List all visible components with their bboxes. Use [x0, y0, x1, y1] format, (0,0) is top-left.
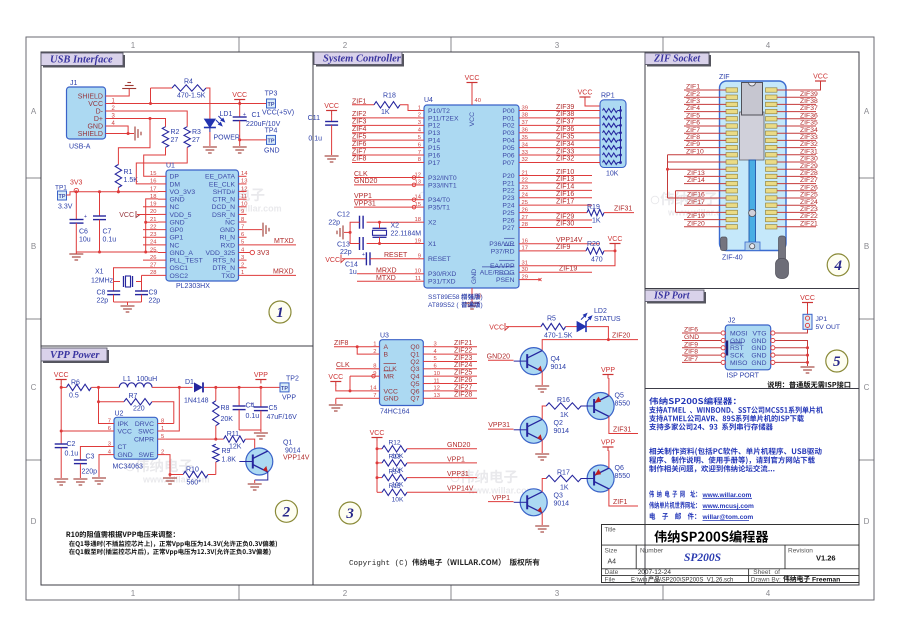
- svg-text:RESET: RESET: [384, 252, 408, 259]
- svg-text:A: A: [384, 344, 389, 351]
- svg-text:P00: P00: [502, 108, 514, 115]
- svg-text:ZIF17: ZIF17: [556, 198, 574, 205]
- svg-text:ZIF22: ZIF22: [454, 347, 472, 354]
- svg-text:R2: R2: [171, 129, 180, 136]
- svg-text:3: 3: [555, 589, 560, 598]
- svg-text:ZIF19: ZIF19: [559, 265, 577, 272]
- svg-text:5V OUT: 5V OUT: [816, 324, 841, 331]
- svg-text:C13: C13: [337, 242, 350, 249]
- svg-text:16: 16: [522, 239, 528, 245]
- svg-text:MTXD: MTXD: [274, 238, 294, 245]
- svg-text:ZIF38: ZIF38: [556, 111, 574, 118]
- svg-text:P20: P20: [502, 173, 514, 180]
- svg-text:VCC: VCC: [469, 112, 476, 126]
- svg-text:MOSI: MOSI: [730, 330, 747, 337]
- svg-text:P25: P25: [502, 210, 514, 217]
- svg-text:E:\win: E:\win: [631, 577, 647, 583]
- svg-text:ZIF4: ZIF4: [686, 105, 700, 112]
- svg-text:GND: GND: [751, 353, 766, 360]
- svg-text:GND: GND: [170, 197, 185, 204]
- svg-text:Q1: Q1: [283, 440, 292, 447]
- svg-text:B: B: [864, 242, 869, 251]
- svg-text:R6: R6: [71, 380, 80, 387]
- svg-text:31: 31: [522, 261, 528, 267]
- svg-text:ZIF9: ZIF9: [684, 341, 698, 348]
- svg-text:8550: 8550: [615, 401, 631, 408]
- svg-text:MR: MR: [384, 374, 395, 381]
- svg-text:GND: GND: [751, 360, 766, 367]
- svg-text:P24: P24: [502, 203, 514, 210]
- svg-text:SWC: SWC: [138, 429, 154, 436]
- svg-text:5: 5: [241, 240, 244, 246]
- svg-text:VCC: VCC: [88, 101, 103, 108]
- svg-text:POWER: POWER: [214, 135, 240, 142]
- svg-text:OSC1: OSC1: [170, 265, 189, 272]
- svg-text:3V3: 3V3: [257, 250, 270, 257]
- svg-text:ZIF29: ZIF29: [556, 213, 574, 220]
- svg-text:ZIF20: ZIF20: [612, 332, 630, 339]
- svg-text:RP1: RP1: [601, 93, 615, 100]
- svg-text:ZIF16: ZIF16: [687, 192, 705, 199]
- svg-text:17: 17: [150, 186, 156, 192]
- svg-text:3: 3: [345, 506, 354, 522]
- svg-text:ZIF29: ZIF29: [800, 163, 818, 170]
- svg-text:P21: P21: [502, 180, 514, 187]
- svg-text:GP1: GP1: [170, 235, 184, 242]
- svg-text:VPP1: VPP1: [354, 193, 372, 200]
- svg-text:P33/INT1: P33/INT1: [428, 182, 457, 189]
- svg-text:C6: C6: [79, 229, 88, 236]
- svg-text:6: 6: [241, 232, 244, 238]
- svg-text:Q3: Q3: [410, 366, 419, 373]
- svg-text:VCC: VCC: [384, 388, 398, 395]
- svg-text:R20: R20: [587, 241, 600, 248]
- svg-text:1K: 1K: [560, 412, 569, 419]
- svg-text:USB-A: USB-A: [69, 144, 91, 151]
- svg-text:ZIF10: ZIF10: [686, 148, 704, 155]
- svg-text:C7: C7: [103, 229, 112, 236]
- svg-text:R8: R8: [221, 405, 230, 412]
- svg-text:13: 13: [241, 179, 247, 185]
- svg-text:Q3: Q3: [554, 493, 563, 500]
- svg-text:ZIF9: ZIF9: [686, 141, 700, 148]
- svg-text:GND20: GND20: [487, 353, 510, 360]
- svg-text:9014: 9014: [551, 364, 567, 371]
- svg-text:P10/T2: P10/T2: [428, 108, 450, 115]
- svg-text:74HC164: 74HC164: [380, 409, 410, 416]
- svg-text:GND20: GND20: [354, 178, 377, 185]
- svg-text:7: 7: [418, 150, 421, 156]
- svg-text:willar@tom.com: willar@tom.com: [702, 514, 754, 521]
- svg-text:Freeman: Freeman: [812, 576, 840, 583]
- svg-text:VCC: VCC: [232, 92, 247, 99]
- svg-text:Number: Number: [640, 548, 664, 555]
- svg-text:40: 40: [475, 98, 481, 104]
- svg-text:R7: R7: [129, 393, 138, 400]
- svg-text:TP1: TP1: [55, 185, 67, 192]
- svg-text:A4: A4: [608, 559, 617, 566]
- svg-text:470-1.5K: 470-1.5K: [177, 93, 206, 100]
- svg-text:P22: P22: [502, 188, 514, 195]
- svg-text:38: 38: [522, 113, 528, 119]
- svg-text:1K: 1K: [381, 109, 390, 116]
- svg-text:ZIF7: ZIF7: [686, 127, 700, 134]
- svg-text:RI_N: RI_N: [220, 235, 236, 242]
- svg-text:25: 25: [150, 247, 156, 253]
- svg-text:ZIF2: ZIF2: [352, 111, 366, 118]
- svg-text:ZIF31: ZIF31: [613, 426, 631, 433]
- svg-text:Q2: Q2: [554, 420, 563, 427]
- svg-text:P17: P17: [428, 160, 440, 167]
- svg-text:12: 12: [241, 186, 247, 192]
- svg-text:R5: R5: [547, 316, 556, 323]
- svg-text:R4: R4: [184, 79, 193, 86]
- svg-text:V1.26: V1.26: [816, 554, 836, 563]
- svg-text:4: 4: [833, 258, 842, 274]
- svg-text:26: 26: [522, 207, 528, 213]
- svg-text:ZIF24: ZIF24: [800, 199, 818, 206]
- svg-text:9: 9: [241, 209, 244, 215]
- svg-text:ZIF3: ZIF3: [686, 98, 700, 105]
- svg-text:Q6: Q6: [410, 388, 419, 395]
- svg-text:8: 8: [241, 217, 244, 223]
- svg-text:ZIF8: ZIF8: [352, 156, 366, 163]
- svg-text:PL2303HX: PL2303HX: [176, 283, 210, 290]
- svg-text:ZIF25: ZIF25: [454, 370, 472, 377]
- svg-text:ZIF26: ZIF26: [454, 377, 472, 384]
- svg-text:D: D: [864, 517, 870, 526]
- svg-text:ZIF8: ZIF8: [334, 340, 348, 347]
- svg-text:0.5: 0.5: [69, 393, 79, 400]
- svg-text:1: 1: [131, 589, 136, 598]
- svg-text:P30/RXD: P30/RXD: [428, 271, 456, 278]
- svg-text:TP: TP: [268, 138, 275, 144]
- svg-text:ZIF6: ZIF6: [686, 120, 700, 127]
- svg-text:ZIF17: ZIF17: [687, 199, 705, 206]
- svg-text:ZIF16: ZIF16: [556, 191, 574, 198]
- svg-text:VPP Power: VPP Power: [50, 350, 100, 361]
- svg-text:LD2: LD2: [594, 308, 607, 315]
- svg-text:P23: P23: [502, 195, 514, 202]
- svg-text:VCC: VCC: [325, 257, 340, 264]
- svg-text:ZIF: ZIF: [719, 74, 730, 81]
- svg-text:X1: X1: [95, 269, 104, 276]
- svg-text:2: 2: [343, 41, 348, 50]
- svg-text:27: 27: [192, 137, 200, 144]
- svg-text:ZIF30: ZIF30: [800, 156, 818, 163]
- svg-text:MISO: MISO: [730, 360, 747, 367]
- svg-text:TP: TP: [281, 386, 288, 392]
- svg-text:0.1u: 0.1u: [246, 413, 260, 420]
- svg-text:GP0: GP0: [170, 227, 184, 234]
- svg-text:VCC: VCC: [813, 74, 828, 81]
- svg-text:Q2: Q2: [410, 359, 419, 366]
- svg-text:ZIF38: ZIF38: [800, 98, 818, 105]
- svg-text:3: 3: [555, 41, 560, 50]
- svg-text:ZIF32: ZIF32: [800, 141, 818, 148]
- svg-text:ZIF31: ZIF31: [614, 205, 632, 212]
- svg-text:Sheet: Sheet: [753, 569, 770, 576]
- svg-text:C14: C14: [345, 262, 358, 269]
- svg-text:P06: P06: [502, 152, 514, 159]
- svg-text:ZIF37: ZIF37: [556, 119, 574, 126]
- svg-text:1K: 1K: [560, 485, 569, 492]
- svg-text:VCC: VCC: [800, 295, 815, 302]
- svg-text:SWE: SWE: [139, 452, 155, 459]
- svg-text:P13: P13: [428, 130, 440, 137]
- svg-text:P34/T0: P34/T0: [428, 197, 450, 204]
- svg-text:ZIF4: ZIF4: [352, 126, 366, 133]
- svg-text:VCC: VCC: [465, 75, 480, 82]
- svg-text:220p: 220p: [82, 469, 98, 476]
- svg-text:TP2: TP2: [286, 376, 299, 383]
- svg-text:EE_CLK: EE_CLK: [209, 181, 236, 188]
- svg-text:P12: P12: [428, 123, 440, 130]
- svg-text:GND: GND: [264, 148, 280, 155]
- svg-text:VCC: VCC: [489, 325, 504, 332]
- svg-text:R3: R3: [192, 129, 201, 136]
- svg-text:RESET: RESET: [428, 256, 451, 263]
- svg-text:D+: D+: [94, 116, 103, 123]
- svg-text:8: 8: [418, 157, 421, 163]
- svg-text:ZIF7: ZIF7: [352, 148, 366, 155]
- svg-text:B: B: [384, 351, 389, 358]
- svg-text:RXD: RXD: [221, 242, 235, 249]
- svg-text:ZIF39: ZIF39: [556, 104, 574, 111]
- svg-text:System Controller: System Controller: [323, 54, 402, 65]
- svg-text:Q5: Q5: [615, 393, 624, 400]
- svg-text:4: 4: [766, 41, 771, 50]
- svg-text:ZIF21: ZIF21: [454, 340, 472, 347]
- svg-text:36: 36: [522, 128, 528, 134]
- svg-text:VCC: VCC: [119, 212, 134, 219]
- svg-text:VPP14V: VPP14V: [447, 486, 474, 493]
- svg-text:0.1u: 0.1u: [65, 451, 79, 458]
- svg-text:35: 35: [522, 135, 528, 141]
- svg-text:VCC(+5V): VCC(+5V): [262, 110, 294, 117]
- svg-text:Drawn By:: Drawn By:: [751, 576, 781, 583]
- svg-text:CLK: CLK: [336, 362, 350, 369]
- svg-text:+: +: [362, 252, 365, 258]
- svg-text:P31/TXD: P31/TXD: [428, 279, 456, 286]
- svg-text:L1: L1: [123, 376, 131, 383]
- svg-text:): ): [481, 294, 483, 301]
- svg-text:): ): [481, 302, 483, 309]
- svg-text:SP200S: SP200S: [684, 552, 721, 564]
- svg-text:D1: D1: [185, 379, 194, 386]
- svg-text:VDD_325: VDD_325: [206, 250, 236, 257]
- svg-text:ZIF10: ZIF10: [556, 169, 574, 176]
- svg-text:TXD: TXD: [221, 273, 235, 280]
- svg-text:P03: P03: [502, 130, 514, 137]
- svg-text:8550: 8550: [615, 473, 631, 480]
- svg-text:ZIF24: ZIF24: [454, 362, 472, 369]
- svg-text:P15: P15: [428, 145, 440, 152]
- svg-text:5: 5: [833, 354, 841, 370]
- svg-text:P02: P02: [502, 123, 514, 130]
- svg-text:ZIF35: ZIF35: [800, 120, 818, 127]
- svg-text:D: D: [31, 517, 37, 526]
- svg-text:ZIF23: ZIF23: [800, 206, 818, 213]
- svg-text:20K: 20K: [221, 416, 234, 423]
- svg-text:1: 1: [241, 270, 244, 276]
- svg-text:GND_A: GND_A: [170, 250, 194, 257]
- svg-text:RTS_N: RTS_N: [213, 258, 235, 265]
- svg-text:STATUS: STATUS: [594, 316, 621, 323]
- svg-text:P04: P04: [502, 138, 514, 145]
- svg-text:470-1.5K: 470-1.5K: [544, 333, 573, 340]
- svg-text:ZIF36: ZIF36: [556, 126, 574, 133]
- svg-text:U2: U2: [115, 411, 124, 418]
- svg-text:ZIF32: ZIF32: [556, 156, 574, 163]
- svg-text:VCC: VCC: [54, 372, 69, 379]
- svg-text:9014: 9014: [554, 501, 570, 508]
- svg-text:ZIF7: ZIF7: [684, 356, 698, 363]
- svg-text:R17: R17: [557, 470, 570, 477]
- svg-text:47uF/16V: 47uF/16V: [267, 414, 298, 421]
- svg-text:CTR_N: CTR_N: [212, 197, 235, 204]
- svg-text:GND: GND: [471, 269, 478, 284]
- svg-text:SHIELD: SHIELD: [78, 94, 103, 101]
- svg-text:C8: C8: [97, 290, 106, 297]
- svg-text:ZIF1: ZIF1: [613, 499, 627, 506]
- svg-text:3: 3: [418, 120, 421, 126]
- svg-text:27: 27: [171, 137, 179, 144]
- svg-text:P14: P14: [428, 138, 440, 145]
- svg-text:ZIF33: ZIF33: [556, 148, 574, 155]
- svg-text:+: +: [243, 112, 246, 118]
- svg-text:D-: D-: [96, 109, 104, 116]
- svg-text:GND20: GND20: [447, 442, 470, 449]
- svg-text:R10: R10: [186, 467, 199, 474]
- svg-text:Date: Date: [605, 569, 619, 576]
- svg-text:ZIF5: ZIF5: [686, 112, 700, 119]
- svg-text:32: 32: [522, 157, 528, 163]
- svg-text:21: 21: [522, 170, 528, 176]
- svg-text:ZIF14: ZIF14: [687, 177, 705, 184]
- svg-text:Q6: Q6: [615, 465, 624, 472]
- svg-text:GND: GND: [87, 124, 103, 131]
- svg-text:2: 2: [241, 263, 244, 269]
- svg-text:VPP: VPP: [601, 440, 615, 447]
- svg-text:+: +: [84, 214, 87, 220]
- svg-text:Q0: Q0: [410, 344, 419, 351]
- svg-text:VPP31: VPP31: [488, 422, 510, 429]
- svg-text:P36/WR: P36/WR: [489, 241, 514, 248]
- svg-text:ZIF13: ZIF13: [687, 170, 705, 177]
- svg-text:www.willar.com: www.willar.com: [702, 492, 752, 499]
- svg-text:ZIF23: ZIF23: [454, 355, 472, 362]
- svg-text:23: 23: [522, 185, 528, 191]
- svg-text:10K: 10K: [606, 171, 619, 178]
- svg-text:28: 28: [522, 222, 528, 228]
- svg-text:22p: 22p: [149, 298, 161, 305]
- svg-text:R14: R14: [388, 468, 400, 475]
- svg-text:P35/T1: P35/T1: [428, 205, 450, 212]
- svg-text:PSEN: PSEN: [496, 277, 515, 284]
- svg-text:AT89S52 (: AT89S52 (: [428, 302, 459, 309]
- svg-text:SST89E58 (: SST89E58 (: [428, 294, 464, 301]
- svg-text:R13: R13: [388, 454, 400, 461]
- svg-text:R12: R12: [388, 440, 400, 447]
- svg-text:ALE/PROG: ALE/PROG: [480, 270, 515, 277]
- svg-text:TP: TP: [59, 194, 66, 200]
- svg-text:GND: GND: [751, 345, 766, 352]
- svg-text:1: 1: [131, 41, 136, 50]
- svg-text:3: 3: [241, 255, 244, 261]
- svg-text:ZIF30: ZIF30: [556, 221, 574, 228]
- svg-text:CLK: CLK: [384, 366, 398, 373]
- svg-text:P37/RD: P37/RD: [491, 248, 515, 255]
- svg-text:Size: Size: [605, 548, 618, 555]
- svg-text:P16: P16: [428, 152, 440, 159]
- svg-text:ZIF36: ZIF36: [800, 112, 818, 119]
- svg-text:P26: P26: [502, 217, 514, 224]
- svg-text:16: 16: [150, 179, 156, 185]
- svg-text:X1: X1: [428, 241, 437, 248]
- svg-text:VCC: VCC: [370, 430, 385, 437]
- svg-text:2007-12-24: 2007-12-24: [638, 569, 672, 576]
- svg-text:Q7: Q7: [410, 396, 419, 403]
- svg-text:SHTD#: SHTD#: [213, 189, 236, 196]
- svg-text:R11: R11: [227, 431, 239, 438]
- svg-text:R18: R18: [383, 93, 396, 100]
- svg-text:of: of: [775, 569, 781, 576]
- svg-text:ZIF Socket: ZIF Socket: [653, 54, 701, 65]
- svg-text:ZIF8: ZIF8: [686, 134, 700, 141]
- svg-text:ZIF27: ZIF27: [454, 384, 472, 391]
- svg-text:25: 25: [522, 200, 528, 206]
- svg-text:VTG: VTG: [753, 330, 767, 337]
- svg-text:DCD_N: DCD_N: [212, 204, 236, 211]
- svg-text:33: 33: [522, 150, 528, 156]
- svg-text:www.mcusj.com: www.mcusj.com: [702, 503, 755, 510]
- svg-text:ZIF34: ZIF34: [800, 127, 818, 134]
- svg-text:\SP200\SP200S_V1.26.sch: \SP200\SP200S_V1.26.sch: [660, 577, 733, 583]
- svg-text:ISP PORT: ISP PORT: [727, 373, 760, 380]
- svg-text:560*: 560*: [187, 480, 202, 487]
- svg-text:B: B: [31, 242, 36, 251]
- svg-text:GND: GND: [384, 396, 399, 403]
- svg-text:+: +: [250, 402, 253, 408]
- svg-text:DRVC: DRVC: [135, 421, 154, 428]
- svg-text:ZIF33: ZIF33: [800, 134, 818, 141]
- svg-text:VCC: VCC: [578, 90, 593, 97]
- svg-text:1.8K: 1.8K: [222, 457, 237, 464]
- svg-text:Revision: Revision: [788, 548, 813, 555]
- svg-text:ZIF-40: ZIF-40: [722, 255, 743, 262]
- svg-text:30: 30: [522, 267, 528, 273]
- svg-text:VCC: VCC: [328, 374, 343, 381]
- svg-text:A: A: [31, 107, 37, 116]
- svg-text:0.1u: 0.1u: [103, 237, 117, 244]
- svg-text:ZIF27: ZIF27: [800, 177, 818, 184]
- svg-text:NC: NC: [225, 219, 235, 226]
- svg-text:P11/T2EX: P11/T2EX: [428, 115, 459, 122]
- svg-text:NC: NC: [170, 242, 180, 249]
- svg-text:DTR_N: DTR_N: [212, 265, 235, 272]
- svg-text:14: 14: [241, 171, 248, 177]
- svg-text:ZIF2: ZIF2: [686, 91, 700, 98]
- svg-text:PLL_TEST: PLL_TEST: [170, 258, 203, 265]
- svg-text:2: 2: [418, 113, 421, 119]
- svg-text:Q5: Q5: [410, 381, 419, 388]
- svg-text:ZIF28: ZIF28: [454, 392, 472, 399]
- svg-text:22p: 22p: [97, 298, 109, 305]
- svg-text:C2: C2: [67, 441, 76, 448]
- svg-text:7: 7: [241, 224, 244, 230]
- svg-text:VCC: VCC: [324, 103, 339, 110]
